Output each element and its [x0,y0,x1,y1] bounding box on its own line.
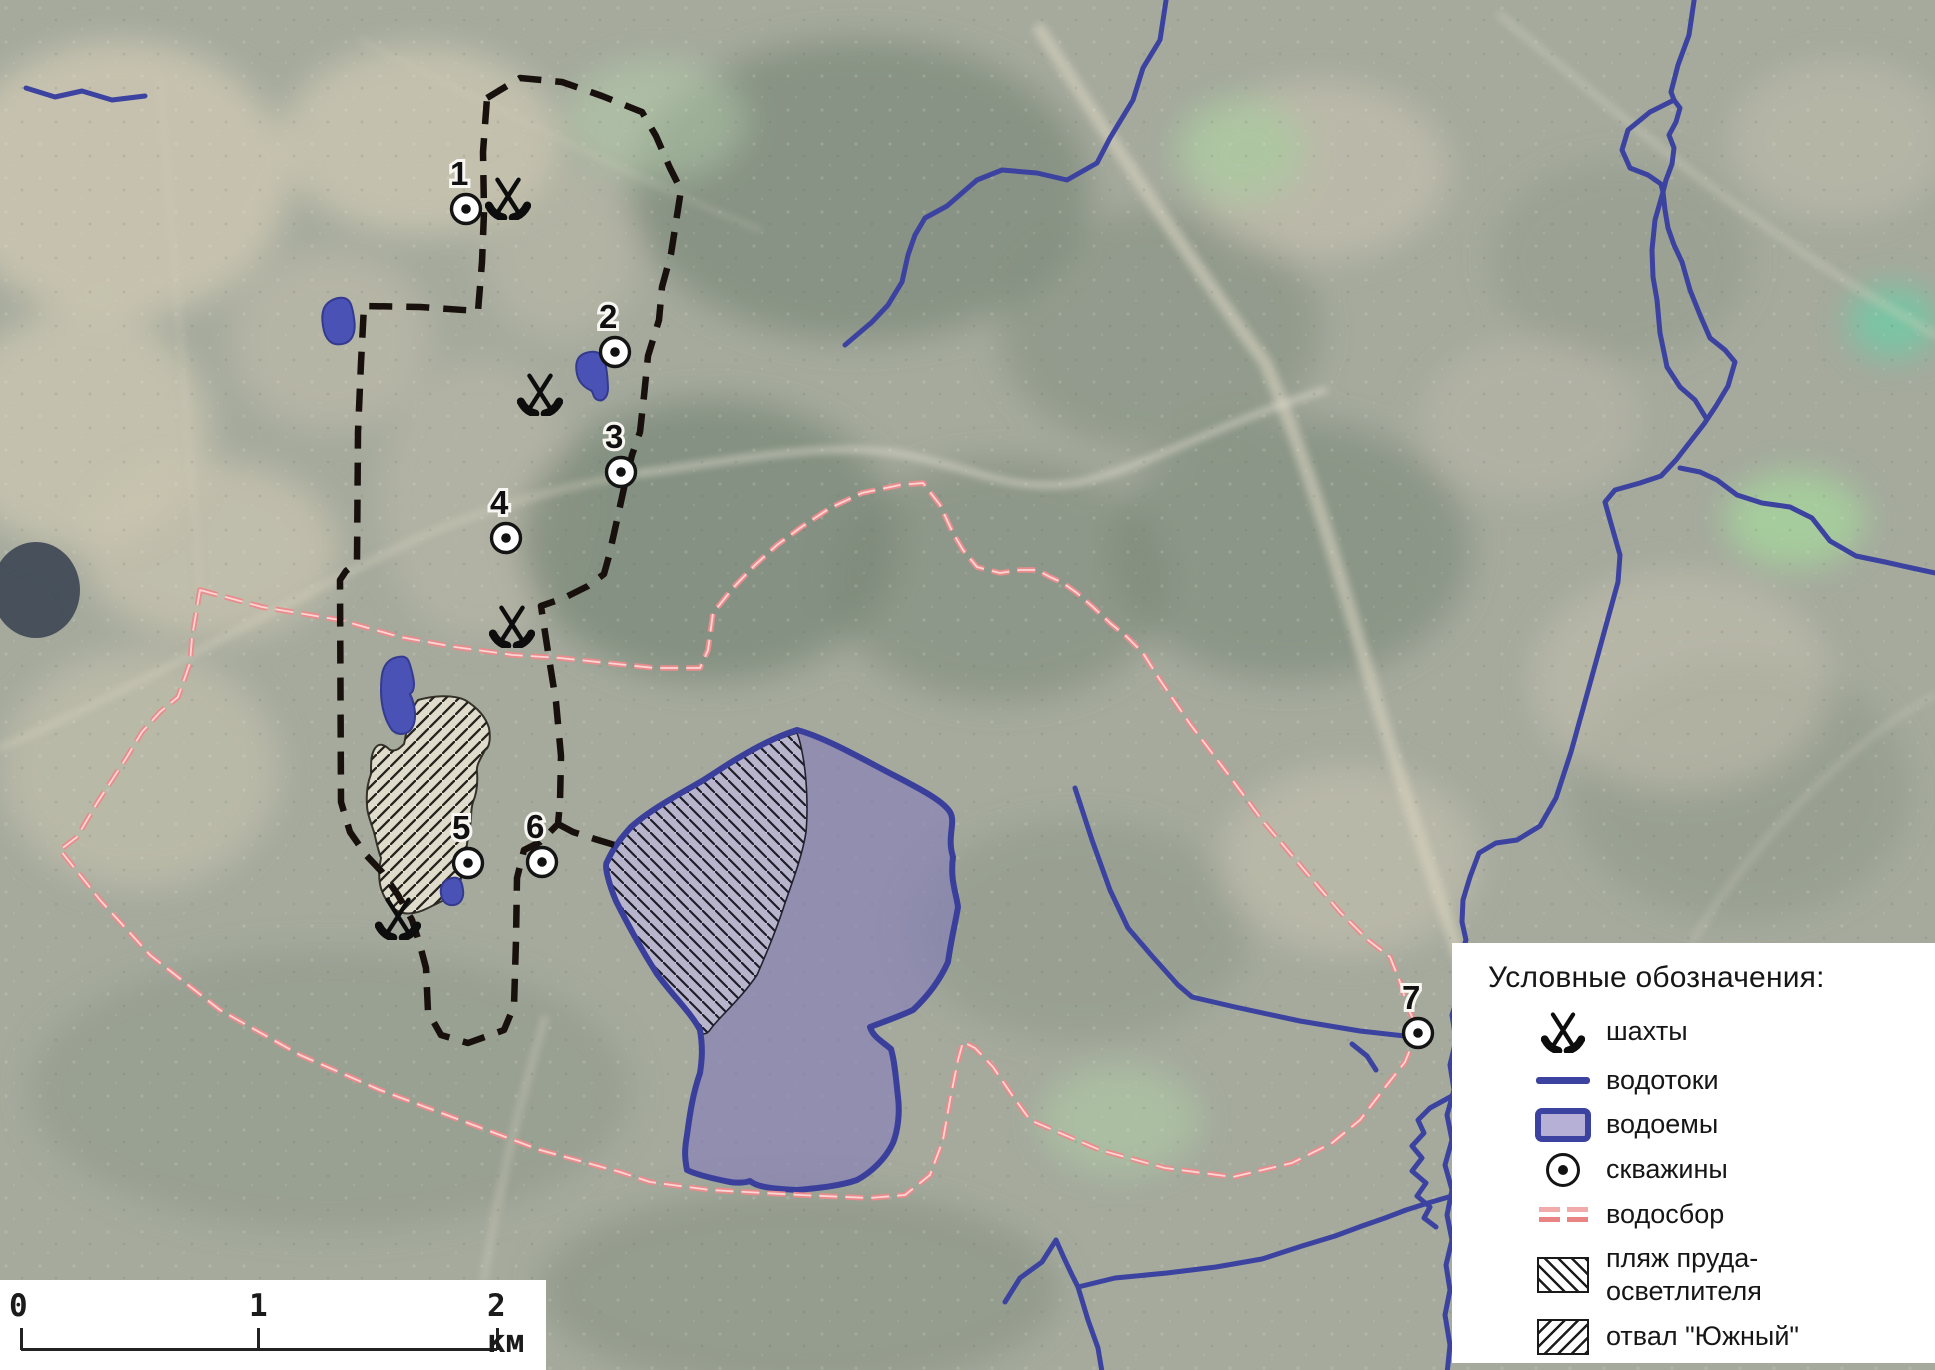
well-number-label: 5 [452,809,470,846]
scale-tick [257,1328,260,1350]
well-marker [1404,1019,1433,1048]
legend-item: шахты [1488,1009,1921,1053]
mine-icon [1541,1009,1585,1053]
well-number-label: 2 [599,298,617,335]
dump-hatch-icon [1532,1319,1594,1355]
legend-item-label: шахты [1606,1015,1688,1048]
well-marker [454,849,483,878]
legend-title: Условные обозначения: [1488,961,1921,995]
waterbody-icon [1532,1108,1594,1142]
legend-item-label: водосбор [1606,1198,1724,1231]
legend-item-label: водотоки [1606,1064,1719,1097]
mine-icon [1532,1009,1594,1053]
well-number-label: 6 [526,808,544,845]
well-marker [492,524,521,553]
legend-item: отвал "Южный" [1488,1319,1921,1355]
well-marker [607,458,636,487]
watercourse-icon [1532,1077,1594,1084]
legend-items: шахтыводотокиводоемыскважиныводосборпляж… [1488,1009,1921,1355]
well-number-label: 3 [605,418,623,455]
legend-item-label: скважины [1606,1153,1728,1186]
small-pond [322,298,354,345]
legend-item-label: пляж пруда- осветлителя [1606,1242,1762,1308]
legend-panel: Условные обозначения: шахтыводотокиводое… [1452,943,1935,1363]
scale-tick-label: 1 [249,1288,268,1324]
legend-item: водоемы [1488,1108,1921,1142]
scale-bar: 012 км [0,1280,546,1370]
well-marker [601,338,630,367]
well-icon [1532,1153,1594,1187]
well-number-label: 4 [490,484,509,521]
scale-tick-label: 2 км [487,1288,546,1360]
legend-item: скважины [1488,1153,1921,1187]
legend-item: водотоки [1488,1064,1921,1097]
scale-tick [20,1328,23,1350]
legend-item: пляж пруда- осветлителя [1488,1242,1921,1308]
well-marker [452,195,481,224]
map-screenshot: 1234567 Условные обозначения: шахтыводот… [0,0,1935,1370]
legend-item-label: отвал "Южный" [1606,1320,1799,1353]
well-number-label: 7 [1402,979,1420,1016]
legend-item-label: водоемы [1606,1108,1718,1141]
beach-hatch-icon [1532,1257,1594,1293]
well-marker [528,848,557,877]
small-pond [441,878,463,906]
well-number-label: 1 [450,155,468,192]
watershed-icon [1532,1207,1594,1222]
legend-item: водосбор [1488,1198,1921,1231]
scale-tick-label: 0 [9,1288,28,1324]
